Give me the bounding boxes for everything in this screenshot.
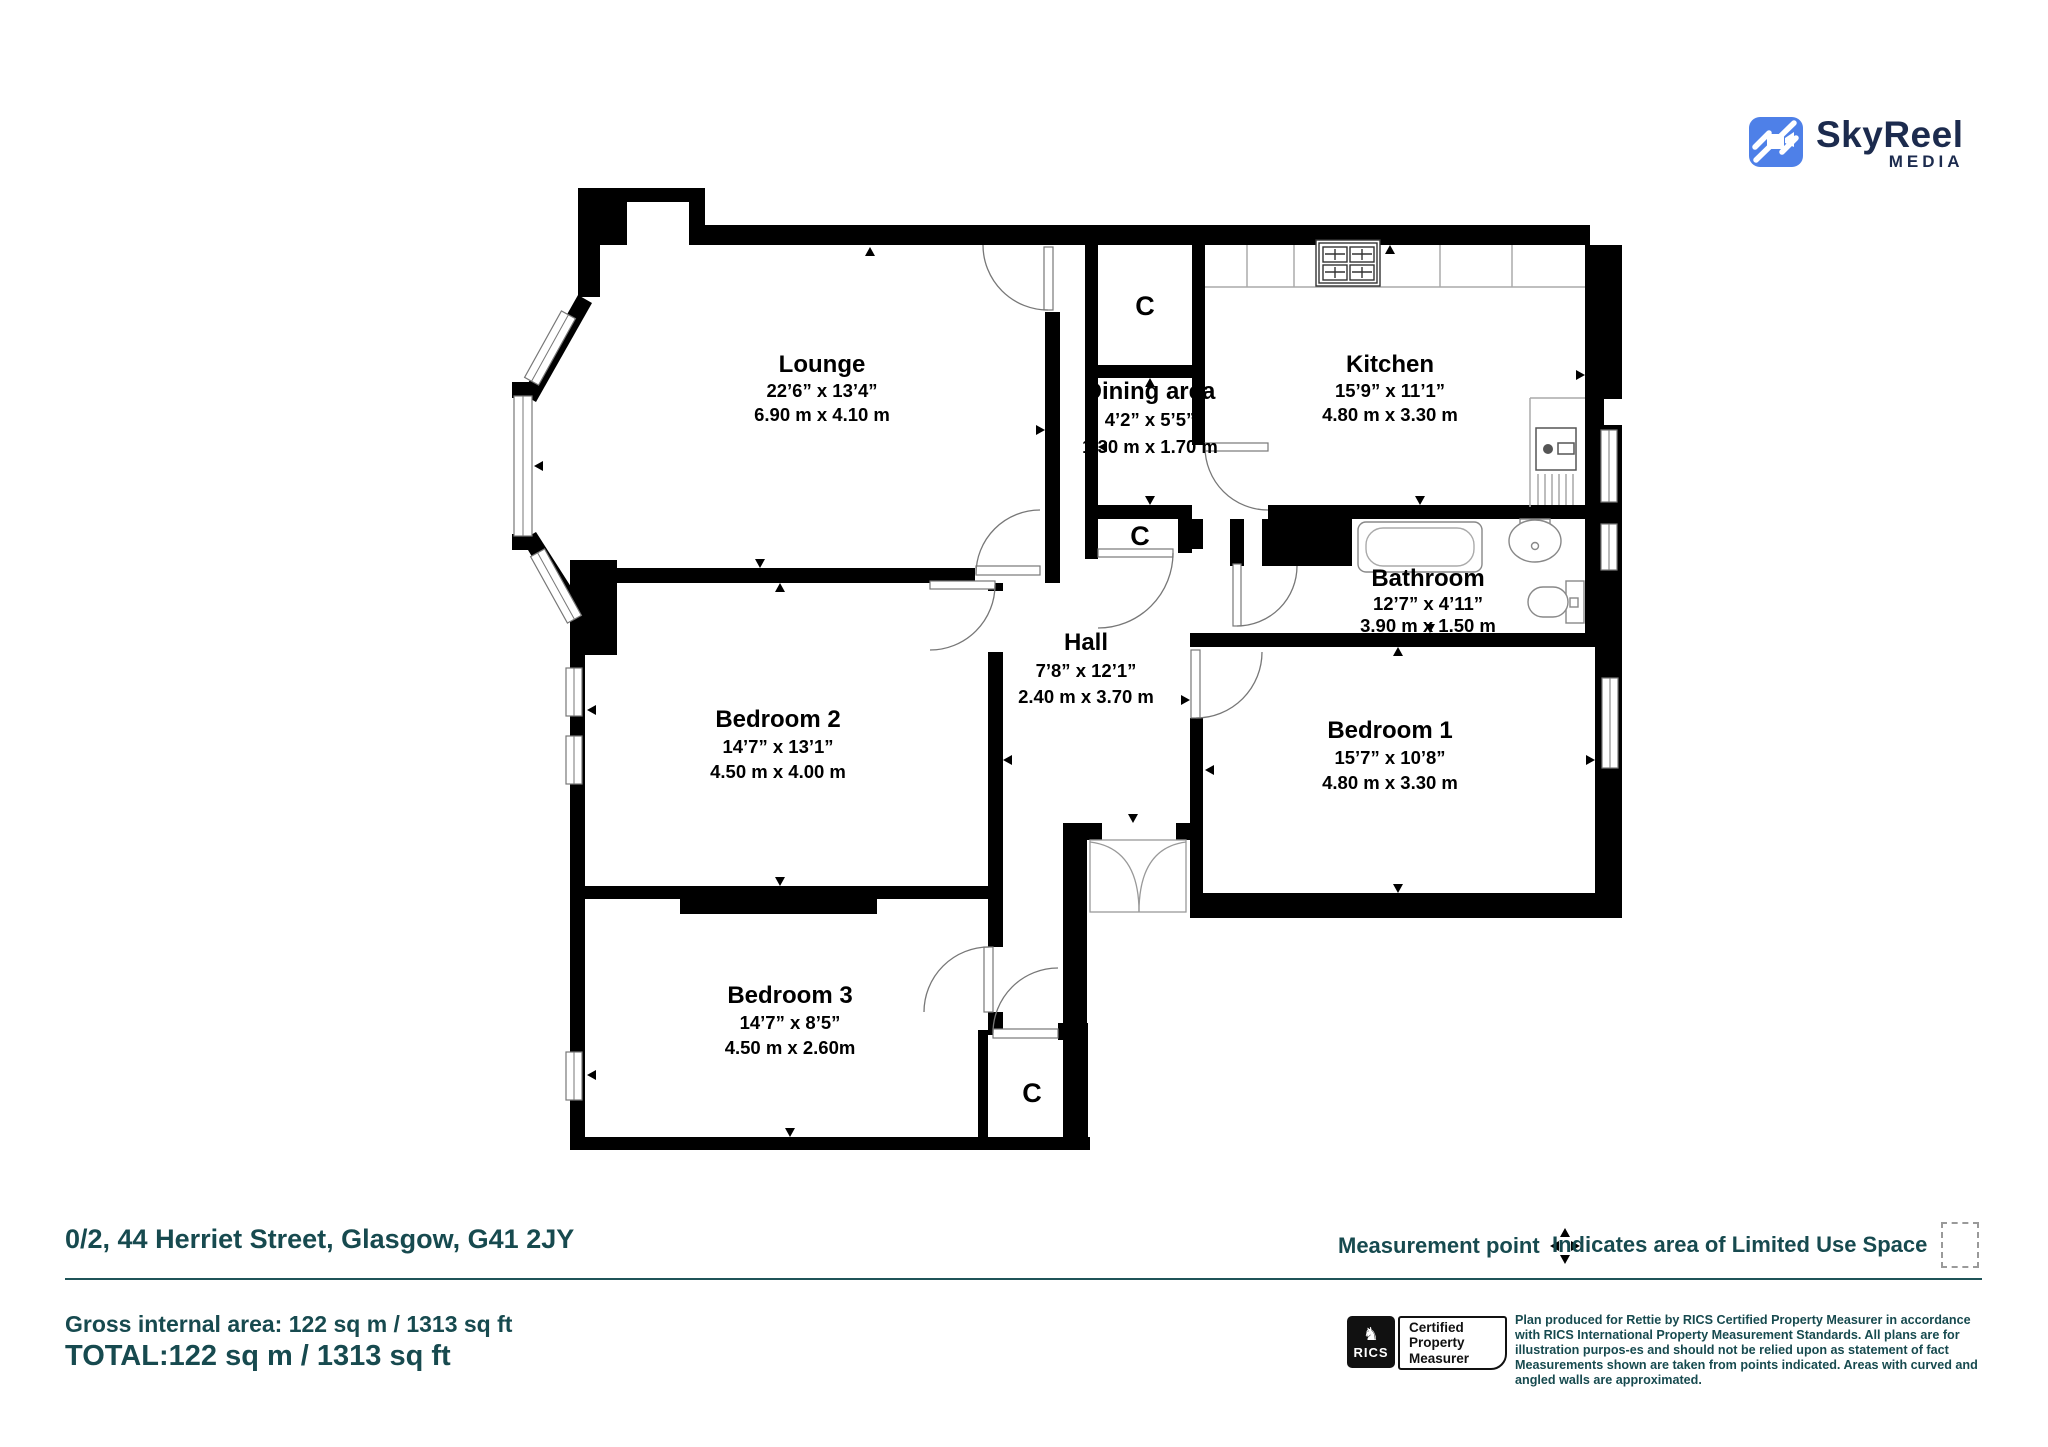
plan-disclaimer: Plan produced for Rettie by RICS Certifi…: [1515, 1313, 1985, 1388]
badge-line-2: Property: [1409, 1335, 1505, 1351]
bedroom3-dim-metric: 4.50 m x 2.60m: [725, 1037, 856, 1058]
hall-title: Hall: [1064, 629, 1108, 656]
fireplace-niche: [627, 202, 689, 245]
hall-dim-metric: 2.40 m x 3.70 m: [1018, 686, 1154, 707]
measurement-point-legend: Measurement point: [1338, 1228, 1580, 1264]
total-area: TOTAL:122 sq m / 1313 sq ft: [65, 1340, 451, 1373]
lounge-dim-metric: 6.90 m x 4.10 m: [754, 404, 890, 425]
bedroom3-dim-imperial: 14’7” x 8’5”: [740, 1012, 841, 1033]
hall-dim-imperial: 7’8” x 12’1”: [1036, 660, 1137, 681]
closet-label-mid: C: [1130, 521, 1150, 551]
drainer-lines: [1538, 474, 1573, 505]
boiler-icon: [1536, 428, 1576, 470]
certified-measurer-badge: Certified Property Measurer: [1398, 1316, 1507, 1370]
skyreel-logo-icon: [1748, 116, 1804, 168]
rics-logo: ♞ RICS: [1347, 1316, 1395, 1368]
brand-name: SkyReel: [1816, 116, 1964, 154]
bedroom3-title: Bedroom 3: [727, 982, 852, 1009]
rics-lion-icon: ♞: [1363, 1325, 1379, 1343]
bathroom-dim-imperial: 12’7” x 4’11”: [1373, 593, 1483, 614]
kitchen-dim-metric: 4.80 m x 3.30 m: [1322, 404, 1458, 425]
badge-line-1: Certified: [1409, 1320, 1505, 1336]
bedroom1-dim-metric: 4.80 m x 3.30 m: [1322, 772, 1458, 793]
limited-use-label: Indicates area of Limited Use Space: [1552, 1232, 1927, 1258]
limited-use-swatch: [1941, 1222, 1979, 1268]
dining-dim-metric: 1.30 m x 1.70 m: [1082, 436, 1218, 457]
measurement-point-label: Measurement point: [1338, 1233, 1540, 1259]
rics-wordmark: RICS: [1353, 1345, 1388, 1360]
toilet-icon: [1528, 581, 1584, 623]
skyreel-logo: SkyReel MEDIA: [1748, 116, 1964, 172]
floorplan-page: Lounge 22’6” x 13’4” 6.90 m x 4.10 m Din…: [0, 0, 2048, 1447]
brand-sub: MEDIA: [1889, 152, 1964, 172]
bedroom2-dim-metric: 4.50 m x 4.00 m: [710, 761, 846, 782]
bathroom-dim-metric: 3.90 m x 1.50 m: [1360, 615, 1496, 636]
bedroom1-title: Bedroom 1: [1327, 717, 1452, 744]
closet-label-top: C: [1135, 291, 1155, 321]
rics-certification-badge: ♞ RICS Certified Property Measurer: [1347, 1316, 1507, 1370]
bedroom2-dim-imperial: 14’7” x 13’1”: [722, 736, 833, 757]
skyreel-logo-text: SkyReel MEDIA: [1816, 116, 1964, 172]
bedroom1-dim-imperial: 15’7” x 10’8”: [1334, 747, 1445, 768]
wall-notch: [1604, 399, 1622, 425]
gross-internal-area: Gross internal area: 122 sq m / 1313 sq …: [65, 1311, 512, 1338]
dining-dim-imperial: 4’2” x 5’5”: [1105, 409, 1196, 430]
sink-icon: [1509, 519, 1561, 562]
closet-label-bottom: C: [1022, 1078, 1042, 1108]
entrance-double-door: [1090, 840, 1186, 912]
kitchen-dim-imperial: 15’9” x 11’1”: [1335, 380, 1445, 401]
bathroom-title: Bathroom: [1371, 565, 1484, 592]
property-address: 0/2, 44 Herriet Street, Glasgow, G41 2JY: [65, 1224, 574, 1255]
footer-divider: [65, 1278, 1982, 1280]
bedroom2-title: Bedroom 2: [715, 706, 840, 733]
lounge-dim-imperial: 22’6” x 13’4”: [766, 380, 877, 401]
room-labels: Lounge 22’6” x 13’4” 6.90 m x 4.10 m Din…: [710, 291, 1496, 1108]
kitchen-title: Kitchen: [1346, 351, 1434, 378]
lounge-title: Lounge: [779, 351, 866, 378]
badge-line-3: Measurer: [1409, 1351, 1505, 1367]
stove-icon: [1316, 240, 1380, 286]
limited-use-legend: Indicates area of Limited Use Space: [1552, 1222, 1979, 1268]
dining-title: Dining area: [1085, 378, 1216, 405]
